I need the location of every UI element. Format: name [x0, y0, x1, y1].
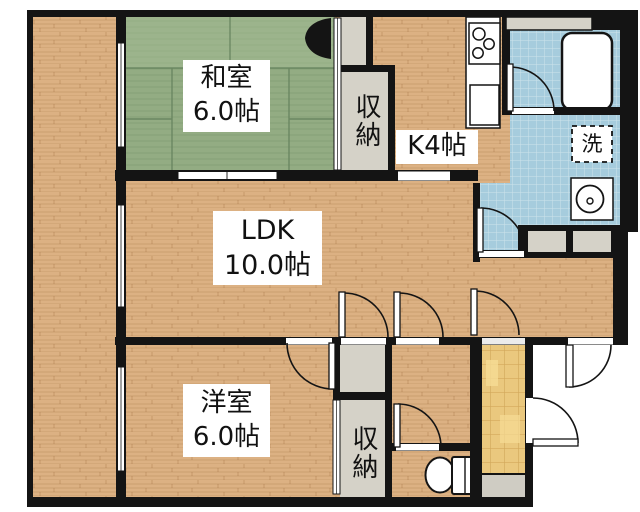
wall-outer-top	[27, 10, 638, 17]
ldk-size: 10.0帖	[224, 248, 311, 283]
yoshitsu-size: 6.0帖	[193, 421, 260, 455]
wall-outer-right-upper	[620, 10, 638, 232]
yoshitsu-name: 洋室	[200, 387, 252, 421]
toilet-icon	[426, 457, 474, 494]
closet-lower-small-floor	[338, 345, 387, 392]
wall-bath-top-corner	[590, 17, 622, 30]
stove-icon	[469, 23, 500, 64]
room-label-yoshitsu: 洋室 6.0帖	[183, 384, 270, 457]
storage-panel	[528, 231, 566, 252]
wall-closet-lower-mid	[333, 392, 392, 400]
room-label-ldk: LDK 10.0帖	[213, 211, 322, 285]
room-label-washitsu: 和室 6.0帖	[183, 60, 270, 132]
wall-closet-lower-right	[385, 343, 392, 507]
sink-icon	[470, 85, 499, 125]
wall-closet-b-right	[388, 65, 395, 181]
washitsu-name: 和室	[200, 62, 252, 96]
closet-lower-label: 収納	[343, 411, 381, 495]
genkan-step	[482, 474, 525, 497]
laundry-label: 洗	[576, 131, 608, 158]
tile-highlight	[500, 415, 520, 443]
washitsu-size: 6.0帖	[193, 96, 260, 130]
bathtub-icon	[562, 33, 612, 110]
porch-door-arc	[569, 345, 611, 387]
closet-upper-small-floor	[340, 17, 366, 65]
tile-highlight	[486, 360, 498, 386]
room-label-kitchen: K4帖	[396, 130, 478, 164]
storage-panel	[573, 231, 611, 252]
wall-closet-b-top	[335, 65, 395, 72]
entrance-door-arc	[533, 398, 578, 443]
bathroom-window	[506, 17, 592, 30]
wall-outer-bottom	[27, 497, 533, 507]
washbasin-icon	[571, 178, 613, 220]
wall-genkan-west	[470, 337, 482, 507]
ldk-name: LDK	[241, 213, 295, 248]
wall-outer-left	[27, 10, 33, 507]
wall-closet-a	[366, 17, 373, 65]
kitchen-counter	[466, 17, 500, 128]
closet-upper-label: 収納	[346, 84, 384, 158]
floor-plan: 和室 6.0帖 LDK 10.0帖 洋室 6.0帖 K4帖 収納 収納 洗	[0, 0, 640, 512]
window-icon	[118, 43, 125, 471]
